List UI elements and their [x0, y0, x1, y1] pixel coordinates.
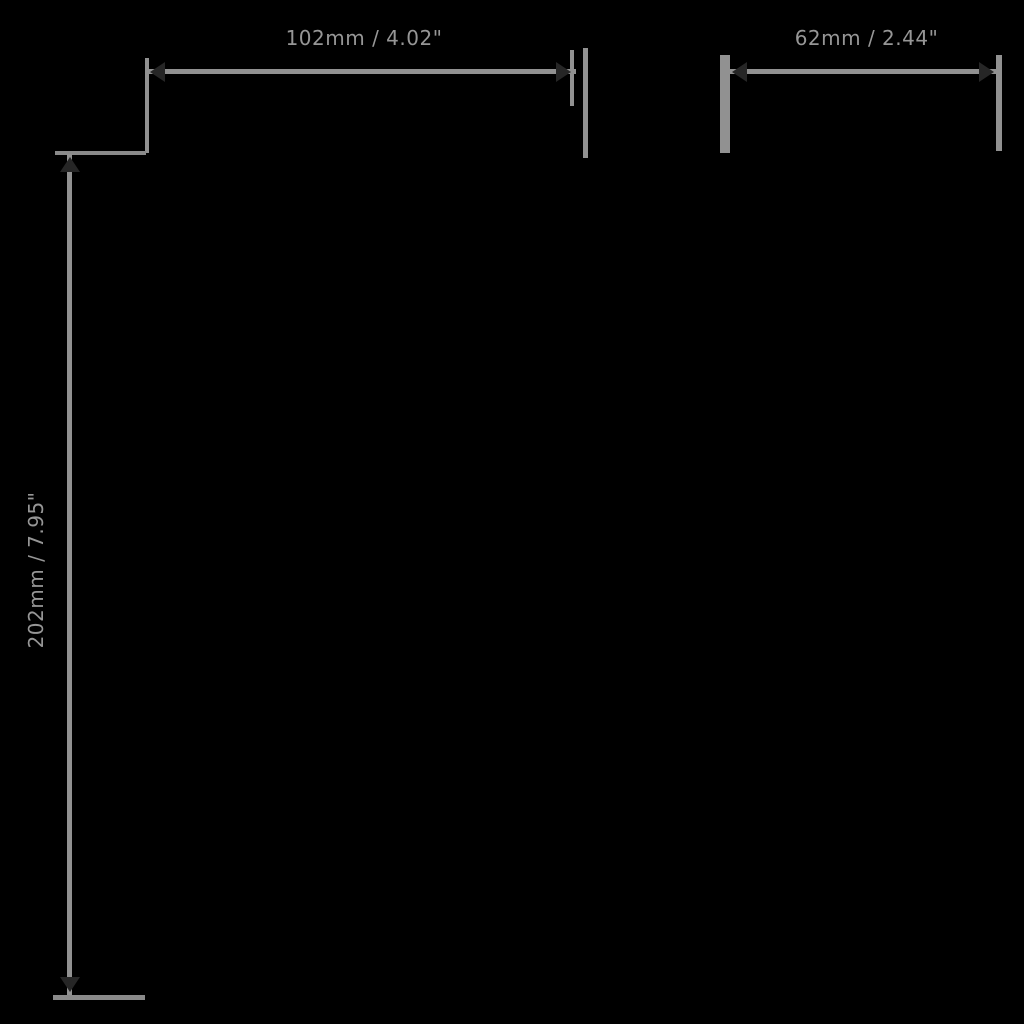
depth-dimension-line: [730, 69, 998, 74]
height-dimension-label: 202mm / 7.95": [24, 492, 48, 649]
height-arrow-down-icon: [60, 977, 80, 992]
depth-witness-line-left: [720, 55, 730, 153]
depth-arrow-left-icon: [732, 62, 747, 82]
width-witness-line-right: [583, 48, 588, 158]
width-dimension-line: [148, 69, 576, 74]
height-arrow-up-icon: [60, 157, 80, 172]
height-extension-line-bottom: [53, 995, 145, 1000]
width-arrow-right-icon: [556, 62, 571, 82]
width-arrow-left-icon: [150, 62, 165, 82]
depth-dimension-label: 62mm / 2.44": [733, 26, 1000, 50]
height-dimension-line: [67, 154, 72, 995]
depth-arrow-right-icon: [979, 62, 994, 82]
width-dimension-label: 102mm / 4.02": [150, 26, 578, 50]
depth-witness-line-right: [996, 55, 1002, 151]
dimension-diagram: 102mm / 4.02" 62mm / 2.44" 202mm / 7.95": [0, 0, 1024, 1024]
